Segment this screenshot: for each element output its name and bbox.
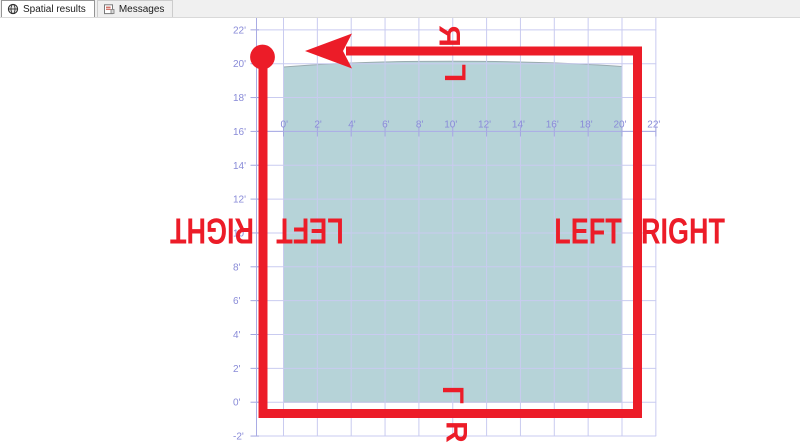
y-tick-label: 0'	[233, 398, 241, 409]
y-tick-label: 22'	[233, 25, 246, 36]
annotation-top-inside: L	[440, 64, 473, 82]
x-tick-label: 4'	[348, 120, 356, 131]
y-tick-label: 12'	[233, 195, 246, 206]
x-tick-label: 2'	[314, 120, 322, 131]
annotation-left-inside: LEFT	[276, 211, 344, 252]
x-tick-label: 8'	[416, 120, 424, 131]
tab-spatial-results-label: Spatial results	[23, 4, 86, 15]
y-tick-label: 2'	[233, 364, 241, 375]
annotation-bottom-outside: R	[440, 421, 473, 443]
x-tick-label: 18'	[580, 120, 593, 131]
tab-messages-label: Messages	[119, 4, 165, 15]
x-tick-label: 6'	[382, 120, 390, 131]
annotation-right-outside: RIGHT	[641, 211, 725, 252]
results-tabbar: Spatial results Messages	[0, 0, 800, 18]
x-tick-label: 0'	[281, 120, 289, 131]
annotation-right-inside: LEFT	[554, 211, 622, 252]
spatial-plot-canvas[interactable]: 0'2'4'6'8'10'12'14'16'18'20'22'22'20'18'…	[0, 0, 800, 446]
x-tick-label: 12'	[478, 120, 491, 131]
start-point-marker	[250, 45, 275, 70]
spatial-results-window: Spatial results Messages 0'2'4'6'8'10'12…	[0, 0, 800, 446]
y-tick-label: 16'	[233, 127, 246, 138]
y-tick-label: 14'	[233, 161, 246, 172]
y-tick-label: 6'	[233, 296, 241, 307]
x-tick-label: 16'	[546, 120, 559, 131]
x-tick-label: 10'	[444, 120, 457, 131]
y-tick-label: -2'	[233, 432, 244, 443]
messages-icon	[103, 3, 115, 15]
tab-messages[interactable]: Messages	[97, 0, 174, 17]
y-tick-label: 20'	[233, 59, 246, 70]
x-tick-label: 22'	[647, 120, 660, 131]
tab-spatial-results[interactable]: Spatial results	[1, 0, 95, 17]
globe-icon	[7, 3, 19, 15]
annotation-bottom-inside: L	[438, 386, 471, 404]
x-tick-label: 14'	[512, 120, 525, 131]
y-tick-label: 8'	[233, 262, 241, 273]
y-tick-label: 18'	[233, 93, 246, 104]
annotation-left-outside: RIGHT	[170, 211, 254, 252]
x-tick-label: 20'	[613, 120, 626, 131]
annotation-top-outside: R	[433, 25, 466, 47]
y-tick-label: 4'	[233, 330, 241, 341]
